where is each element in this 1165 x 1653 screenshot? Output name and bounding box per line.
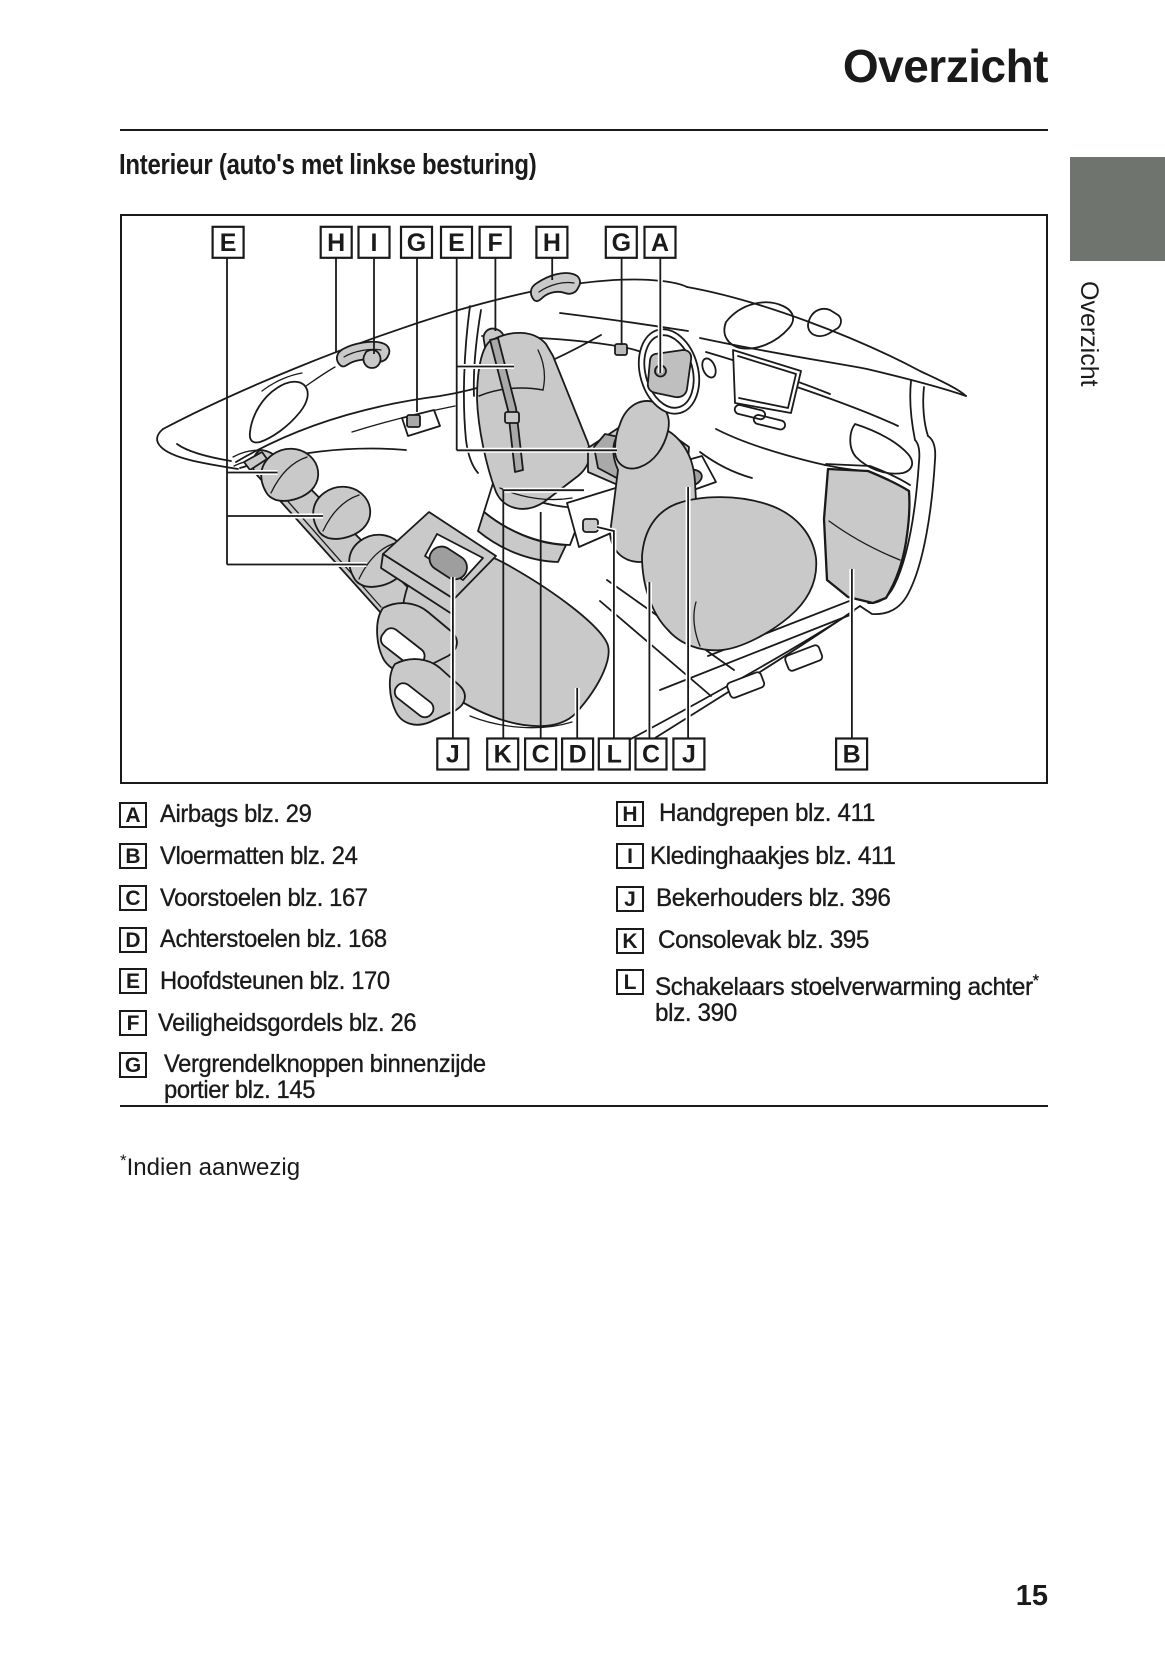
svg-text:L: L bbox=[607, 741, 622, 769]
svg-text:K: K bbox=[494, 741, 512, 769]
svg-text:D: D bbox=[569, 741, 587, 769]
svg-text:I: I bbox=[371, 229, 378, 257]
svg-text:J: J bbox=[682, 741, 696, 769]
svg-text:C: C bbox=[532, 741, 550, 769]
svg-text:J: J bbox=[446, 741, 460, 769]
svg-text:H: H bbox=[543, 229, 561, 257]
svg-text:G: G bbox=[407, 229, 426, 257]
svg-text:E: E bbox=[448, 229, 465, 257]
svg-text:A: A bbox=[651, 229, 669, 257]
svg-text:H: H bbox=[327, 229, 345, 257]
svg-text:C: C bbox=[642, 741, 660, 769]
svg-text:G: G bbox=[612, 229, 631, 257]
svg-text:B: B bbox=[843, 741, 861, 769]
svg-text:F: F bbox=[487, 229, 502, 257]
svg-text:E: E bbox=[220, 229, 237, 257]
